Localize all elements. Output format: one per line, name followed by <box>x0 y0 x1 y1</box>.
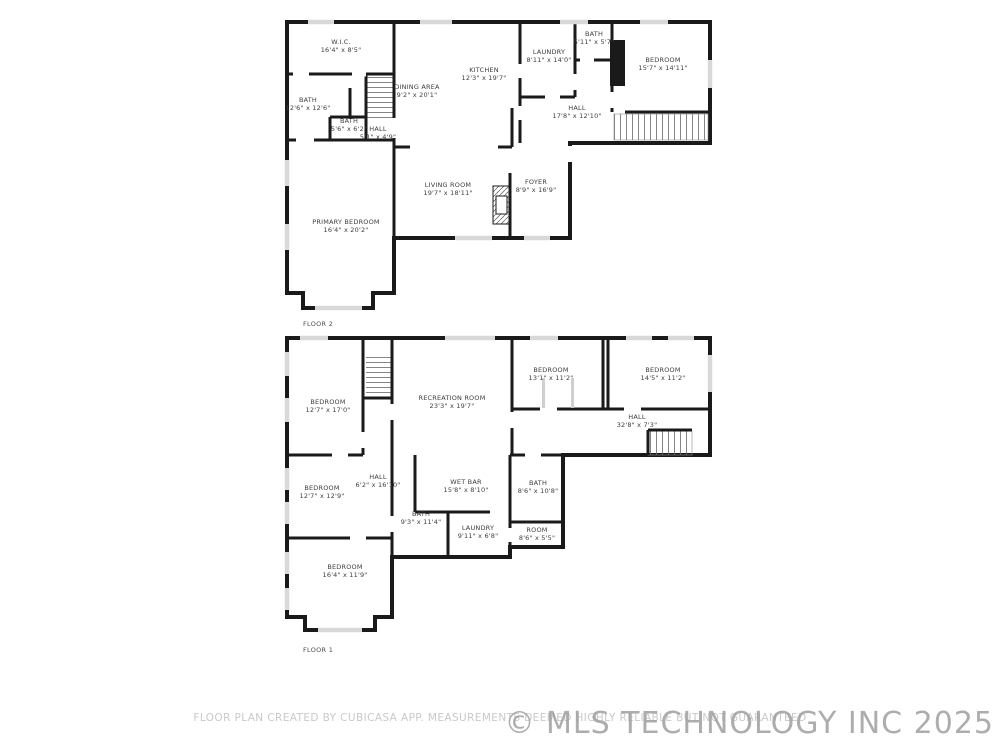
room-label-bedroom: BEDROOM 12'7" x 12'9" <box>300 484 345 500</box>
room-label-hall: HALL 6'2" x 16'10" <box>356 473 401 489</box>
room-label-living-room: LIVING ROOM 19'7" x 18'11" <box>423 181 472 197</box>
floor-1-label: FLOOR 1 <box>303 646 333 654</box>
room-label-bath: BATH 5'11" x 5'7" <box>574 30 615 46</box>
room-label-wic: W.I.C. 16'4" x 8'5" <box>321 38 362 54</box>
room-label-bedroom: BEDROOM 14'5" x 11'2" <box>641 366 686 382</box>
room-label-bedroom: BEDROOM 13'1" x 11'2" <box>529 366 574 382</box>
room-label-hall: HALL 17'8" x 12'10" <box>552 104 601 120</box>
room-label-bedroom: BEDROOM 12'7" x 17'0" <box>306 398 351 414</box>
room-label-recreation-room: RECREATION ROOM 23'3" x 19'7" <box>418 394 485 410</box>
room-label-bath: BATH 12'6" x 12'6" <box>286 96 331 112</box>
room-label-bath: BATH 8'6" x 10'8" <box>518 479 559 495</box>
watermark-text: © MLS TECHNOLOGY INC 2025 <box>504 706 994 741</box>
stairs-icon <box>648 431 692 455</box>
room-label-laundry: LAUNDRY 8'11" x 14'0" <box>527 48 572 64</box>
chimney <box>610 40 625 86</box>
room-label-room: ROOM 8'6" x 5'5" <box>519 526 555 542</box>
room-label-wet-bar: WET BAR 15'8" x 8'10" <box>444 478 489 494</box>
floor-2-label: FLOOR 2 <box>303 320 333 328</box>
room-label-bath: BATH 9'3" x 11'4" <box>401 510 442 526</box>
room-label-kitchen: KITCHEN 12'3" x 19'7" <box>462 66 507 82</box>
closet-door <box>542 378 545 408</box>
stairs-icon <box>366 356 392 398</box>
room-label-primary-bedroom: PRIMARY BEDROOM 16'4" x 20'2" <box>312 218 379 234</box>
fireplace-icon <box>493 186 510 224</box>
floorplan-page: W.I.C. 16'4" x 8'5" BATH 12'6" x 12'6" B… <box>0 0 1000 750</box>
room-label-hall: HALL 32'8" x 7'3" <box>617 413 658 429</box>
room-label-foyer: FOYER 8'9" x 16'9" <box>516 178 557 194</box>
room-label-laundry: LAUNDRY 9'11" x 6'8" <box>458 524 499 540</box>
stairs-icon <box>367 75 393 119</box>
room-label-bedroom: BEDROOM 15'7" x 14'11" <box>638 56 687 72</box>
stairs-icon <box>614 114 708 140</box>
room-label-bedroom: BEDROOM 16'4" x 11'9" <box>323 563 368 579</box>
room-label-dining-area: DINING AREA 9'2" x 20'1" <box>394 83 439 99</box>
closet-door <box>571 378 574 408</box>
room-label-hall: HALL 5'1" x 4'9" <box>360 125 396 141</box>
floorplan-drawing <box>0 0 1000 750</box>
